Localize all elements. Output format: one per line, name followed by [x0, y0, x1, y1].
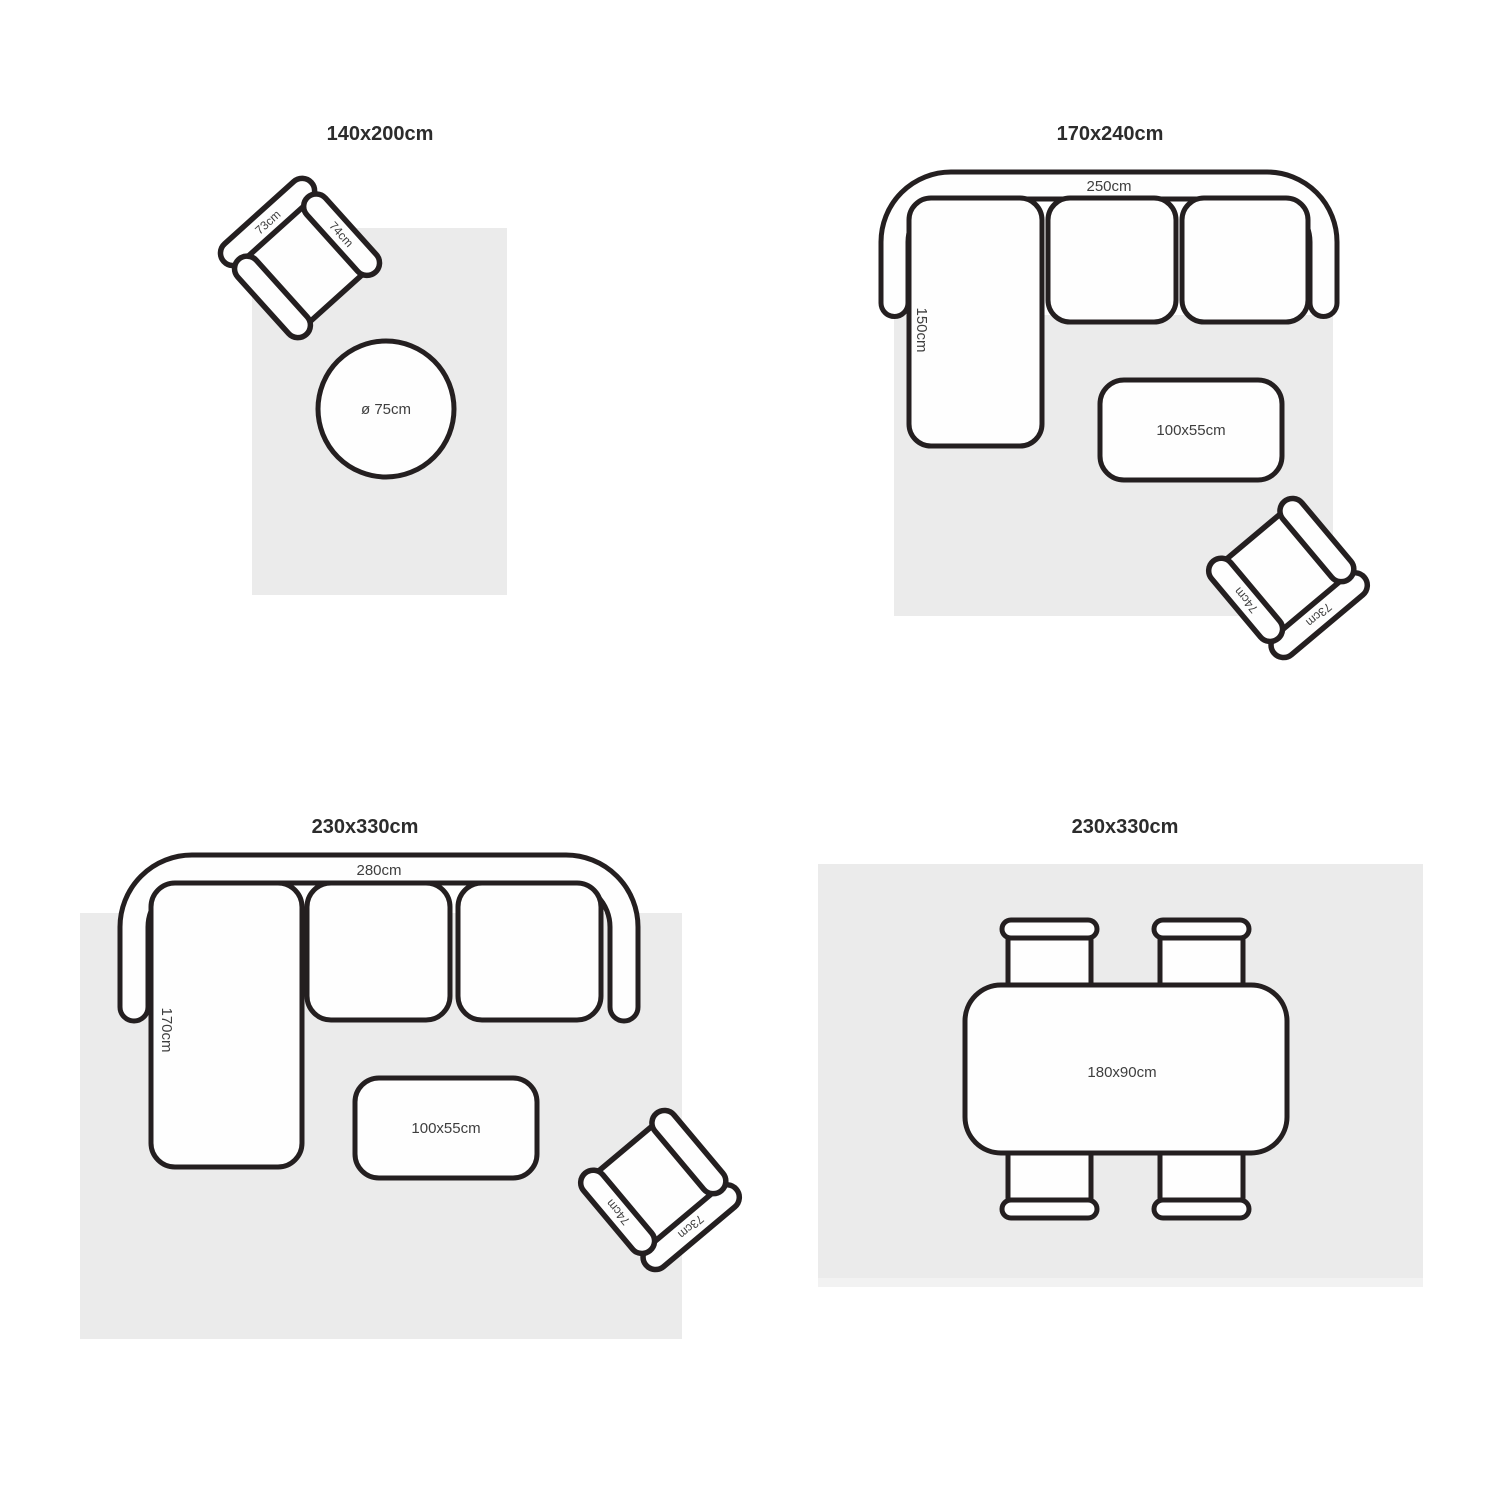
panel-230x330-dining: 230x330cm 180x90cm	[818, 816, 1423, 1287]
dining-chair	[1154, 1150, 1249, 1218]
round-table-label: ø 75cm	[361, 401, 411, 418]
dining-table-label: 180x90cm	[1087, 1064, 1156, 1081]
coffee-table-label: 100x55cm	[1156, 422, 1225, 439]
dining-chair-seat	[1008, 938, 1091, 988]
dining-chair-back	[1154, 1200, 1249, 1218]
dining-chair	[1002, 1150, 1097, 1218]
dining-chair-seat	[1160, 938, 1243, 988]
dining-chair-seat	[1008, 1150, 1091, 1200]
panel-title: 170x240cm	[1057, 123, 1164, 145]
dining-chair-back	[1154, 920, 1249, 938]
rug-size-guide: 140x200cm 73cm 74cm ø 75cm 170x240cm 250…	[0, 0, 1500, 1500]
sofa-cushion	[307, 883, 450, 1020]
sofa-depth-label: 170cm	[158, 1007, 175, 1052]
panel-title: 230x330cm	[1072, 816, 1179, 838]
panel-title: 140x200cm	[327, 123, 434, 145]
sofa-depth-label: 150cm	[913, 307, 930, 352]
sofa-cushion	[1048, 198, 1176, 322]
rug-edge	[818, 1278, 1423, 1287]
size-guide-canvas: 140x200cm 73cm 74cm ø 75cm 170x240cm 250…	[0, 0, 1500, 1500]
dining-chair	[1154, 920, 1249, 988]
dining-chair-seat	[1160, 1150, 1243, 1200]
sofa-width-label: 280cm	[356, 862, 401, 879]
panel-170x240: 170x240cm 250cm 150cm 100x55cm 73cm 74cm	[881, 123, 1372, 663]
dining-chair-back	[1002, 920, 1097, 938]
panel-140x200: 140x200cm 73cm 74cm ø 75cm	[215, 123, 507, 595]
panel-230x330-living: 230x330cm 280cm 170cm 100x55cm 73cm 74cm	[80, 816, 744, 1339]
sofa-width-label: 250cm	[1086, 178, 1131, 195]
panel-title: 230x330cm	[312, 816, 419, 838]
dining-chair-back	[1002, 1200, 1097, 1218]
dining-chair	[1002, 920, 1097, 988]
sofa-cushion	[458, 883, 601, 1020]
sofa-cushion	[1182, 198, 1308, 322]
coffee-table-label: 100x55cm	[411, 1120, 480, 1137]
